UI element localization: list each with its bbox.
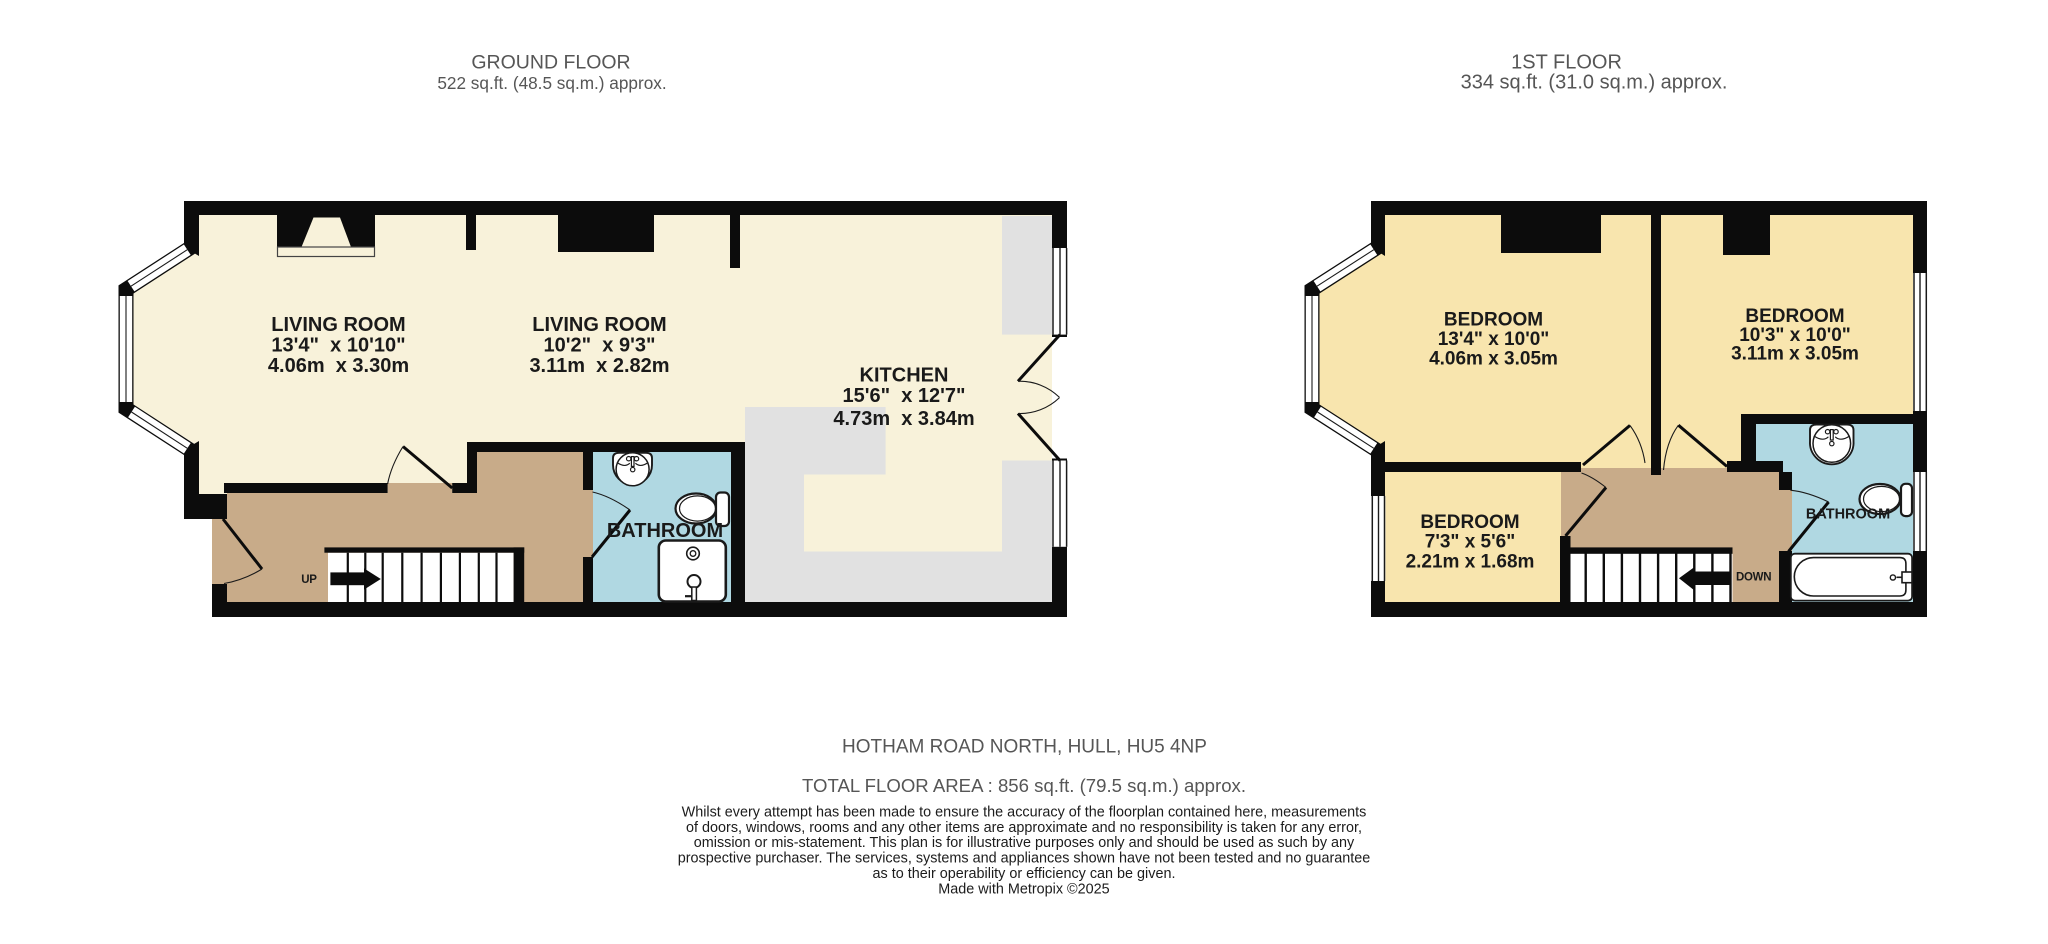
svg-text:BATHROOM: BATHROOM: [1806, 507, 1890, 523]
svg-text:1ST FLOOR: 1ST FLOOR: [1511, 52, 1622, 74]
svg-text:334 sq.ft. (31.0 sq.m.) approx: 334 sq.ft. (31.0 sq.m.) approx.: [1461, 72, 1728, 94]
svg-text:15'6" x 12'7": 15'6" x 12'7": [842, 385, 965, 407]
svg-text:as to their operability or eff: as to their operability or efficiency ca…: [873, 866, 1176, 882]
svg-text:LIVING ROOM: LIVING ROOM: [271, 314, 405, 336]
svg-text:3.11m x 3.05m: 3.11m x 3.05m: [1731, 344, 1859, 365]
svg-text:2.21m x 1.68m: 2.21m x 1.68m: [1406, 552, 1535, 573]
svg-text:TOTAL FLOOR AREA : 856 sq.ft.: TOTAL FLOOR AREA : 856 sq.ft. (79.5 sq.m…: [802, 775, 1246, 796]
svg-text:3.11m x 2.82m: 3.11m x 2.82m: [529, 355, 669, 377]
svg-text:of doors, windows, rooms and a: of doors, windows, rooms and any other i…: [686, 820, 1362, 836]
svg-text:BATHROOM: BATHROOM: [607, 520, 723, 542]
svg-text:13'4" x 10'0": 13'4" x 10'0": [1438, 329, 1550, 350]
svg-text:BEDROOM: BEDROOM: [1420, 512, 1519, 533]
svg-text:Made with Metropix ©2025: Made with Metropix ©2025: [938, 881, 1109, 897]
svg-text:BEDROOM: BEDROOM: [1745, 306, 1844, 327]
svg-text:13'4" x 10'10": 13'4" x 10'10": [271, 335, 405, 357]
svg-text:UP: UP: [301, 574, 317, 586]
svg-text:4.73m x 3.84m: 4.73m x 3.84m: [833, 408, 974, 430]
svg-text:DOWN: DOWN: [1736, 572, 1771, 584]
svg-text:omission or mis-statement. Thi: omission or mis-statement. This plan is …: [694, 835, 1355, 851]
svg-text:4.06m x 3.30m: 4.06m x 3.30m: [268, 355, 409, 377]
svg-text:Whilst every attempt has been: Whilst every attempt has been made to en…: [682, 805, 1367, 821]
svg-text:prospective purchaser. The ser: prospective purchaser. The services, sys…: [678, 851, 1371, 867]
svg-text:KITCHEN: KITCHEN: [860, 365, 949, 387]
svg-text:7'3" x 5'6": 7'3" x 5'6": [1425, 532, 1515, 553]
svg-text:10'2" x 9'3": 10'2" x 9'3": [544, 335, 656, 357]
svg-text:GROUND FLOOR: GROUND FLOOR: [471, 52, 630, 74]
svg-text:BEDROOM: BEDROOM: [1444, 310, 1543, 331]
svg-text:522 sq.ft. (48.5 sq.m.) approx: 522 sq.ft. (48.5 sq.m.) approx.: [437, 73, 666, 93]
svg-text:HOTHAM ROAD NORTH, HULL, HU5 4: HOTHAM ROAD NORTH, HULL, HU5 4NP: [842, 737, 1207, 758]
svg-text:4.06m x 3.05m: 4.06m x 3.05m: [1429, 349, 1558, 370]
svg-text:LIVING ROOM: LIVING ROOM: [532, 314, 666, 336]
